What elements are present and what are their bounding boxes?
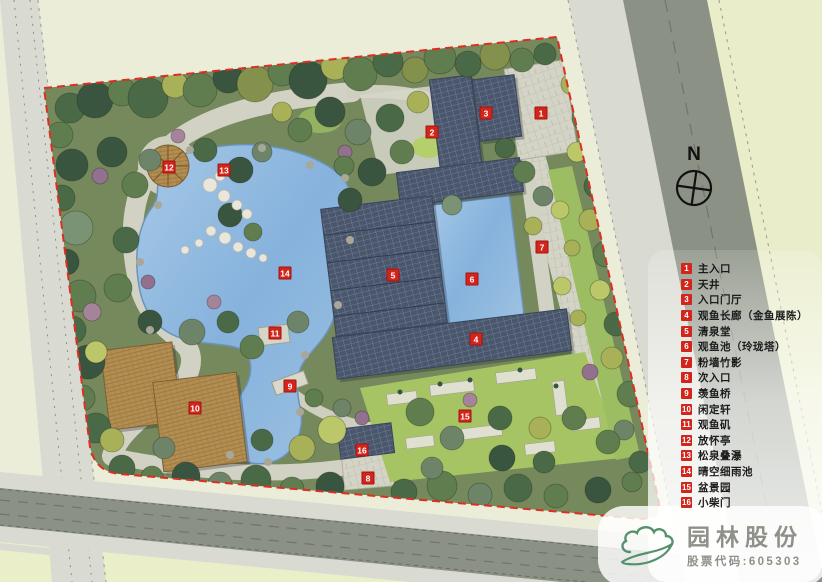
legend-item-1: 1主入口 [681, 261, 808, 277]
legend-label: 闲定轩 [698, 402, 731, 417]
legend-label: 小柴门 [698, 495, 731, 510]
plan-marker-1: 1 [535, 107, 548, 120]
legend-item-9: 9羡鱼桥 [681, 386, 808, 402]
legend-label: 入口门厅 [698, 292, 742, 307]
legend-number-badge: 12 [681, 435, 692, 446]
legend-number-badge: 9 [681, 388, 692, 399]
legend-item-11: 11观鱼矶 [681, 417, 808, 433]
plan-marker-10: 10 [189, 402, 202, 415]
legend-label: 清泉堂 [698, 324, 731, 339]
legend-number-badge: 11 [681, 419, 692, 430]
legend-label: 观鱼矶 [698, 417, 731, 432]
cloud-leaf-logo-icon [616, 524, 678, 570]
legend-label: 主入口 [698, 261, 731, 276]
legend-item-8: 8次入口 [681, 370, 808, 386]
plan-marker-5: 5 [387, 269, 400, 282]
legend-label: 观鱼池（玲珑塔） [698, 339, 786, 354]
legend-label: 粉墙竹影 [698, 355, 742, 370]
company-name: 园林股份 [687, 525, 803, 550]
legend-number-badge: 4 [681, 310, 692, 321]
legend-number-badge: 15 [681, 482, 692, 493]
legend-item-3: 3入口门厅 [681, 292, 808, 308]
plan-marker-14: 14 [279, 267, 292, 280]
legend-number-badge: 2 [681, 279, 692, 290]
north-label: N [666, 146, 722, 164]
legend-item-16: 16小柴门 [681, 495, 808, 511]
legend-item-7: 7粉墙竹影 [681, 355, 808, 371]
legend-label: 放怀亭 [698, 433, 731, 448]
legend-number-badge: 13 [681, 450, 692, 461]
legend-number-badge: 16 [681, 497, 692, 508]
legend-number-badge: 8 [681, 372, 692, 383]
legend-number-badge: 7 [681, 357, 692, 368]
plan-marker-2: 2 [426, 126, 439, 139]
legend-label: 观鱼长廊（金鱼展陈） [698, 308, 808, 323]
legend-label: 天井 [698, 277, 720, 292]
legend-item-6: 6观鱼池（玲珑塔） [681, 339, 808, 355]
site-plan-page: N 1主入口2天井3入口门厅4观鱼长廊（金鱼展陈）5清泉堂6观鱼池（玲珑塔）7粉… [0, 0, 822, 582]
plan-marker-4: 4 [470, 333, 483, 346]
legend-number-badge: 6 [681, 341, 692, 352]
legend-number-badge: 3 [681, 294, 692, 305]
legend-item-13: 13松泉叠瀑 [681, 448, 808, 464]
legend-label: 羡鱼桥 [698, 386, 731, 401]
plan-marker-3: 3 [480, 107, 493, 120]
plan-marker-9: 9 [284, 380, 297, 393]
north-compass: N [666, 146, 722, 213]
legend-item-5: 5清泉堂 [681, 323, 808, 339]
legend-number-badge: 10 [681, 404, 692, 415]
plan-marker-13: 13 [218, 164, 231, 177]
legend-item-14: 14晴空细雨池 [681, 464, 808, 480]
company-logo: 园林股份 股票代码:605303 [616, 524, 803, 570]
legend-item-12: 12放怀亭 [681, 433, 808, 449]
legend-number-badge: 5 [681, 326, 692, 337]
legend-label: 晴空细雨池 [698, 464, 753, 479]
legend-number-badge: 1 [681, 263, 692, 274]
legend-label: 次入口 [698, 370, 731, 385]
plan-marker-12: 12 [163, 161, 176, 174]
legend-item-15: 15盆景园 [681, 479, 808, 495]
plan-marker-6: 6 [466, 273, 479, 286]
legend-number-badge: 14 [681, 466, 692, 477]
stock-code: 股票代码:605303 [687, 553, 803, 569]
compass-icon [672, 164, 716, 208]
plan-marker-8: 8 [362, 472, 375, 485]
plan-marker-11: 11 [269, 327, 282, 340]
legend-item-2: 2天井 [681, 277, 808, 293]
plan-marker-16: 16 [356, 444, 369, 457]
legend-item-10: 10闲定轩 [681, 401, 808, 417]
legend-label: 松泉叠瀑 [698, 448, 742, 463]
plan-marker-15: 15 [459, 410, 472, 423]
building-qingquan-hall [321, 196, 448, 337]
legend-item-4: 4观鱼长廊（金鱼展陈） [681, 308, 808, 324]
legend-label: 盆景园 [698, 480, 731, 495]
legend: 1主入口2天井3入口门厅4观鱼长廊（金鱼展陈）5清泉堂6观鱼池（玲珑塔）7粉墙竹… [681, 261, 808, 511]
plan-marker-7: 7 [536, 241, 549, 254]
